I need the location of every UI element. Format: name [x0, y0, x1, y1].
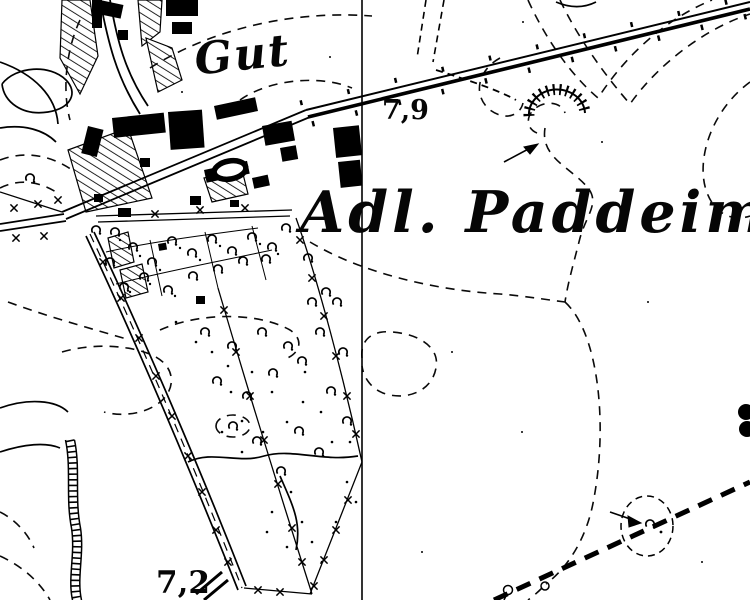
- paper-background: [0, 0, 750, 600]
- estate-label: Gut: [192, 25, 293, 86]
- place-name-label: Adl. Paddeim: [295, 179, 750, 246]
- spot-height-north: 7,9: [382, 95, 429, 126]
- map-svg: Gut 7,9 Adl. Paddeim 7,2: [0, 0, 750, 600]
- spot-height-south: 7,2: [156, 565, 210, 600]
- map-canvas[interactable]: Gut 7,9 Adl. Paddeim 7,2: [0, 0, 750, 600]
